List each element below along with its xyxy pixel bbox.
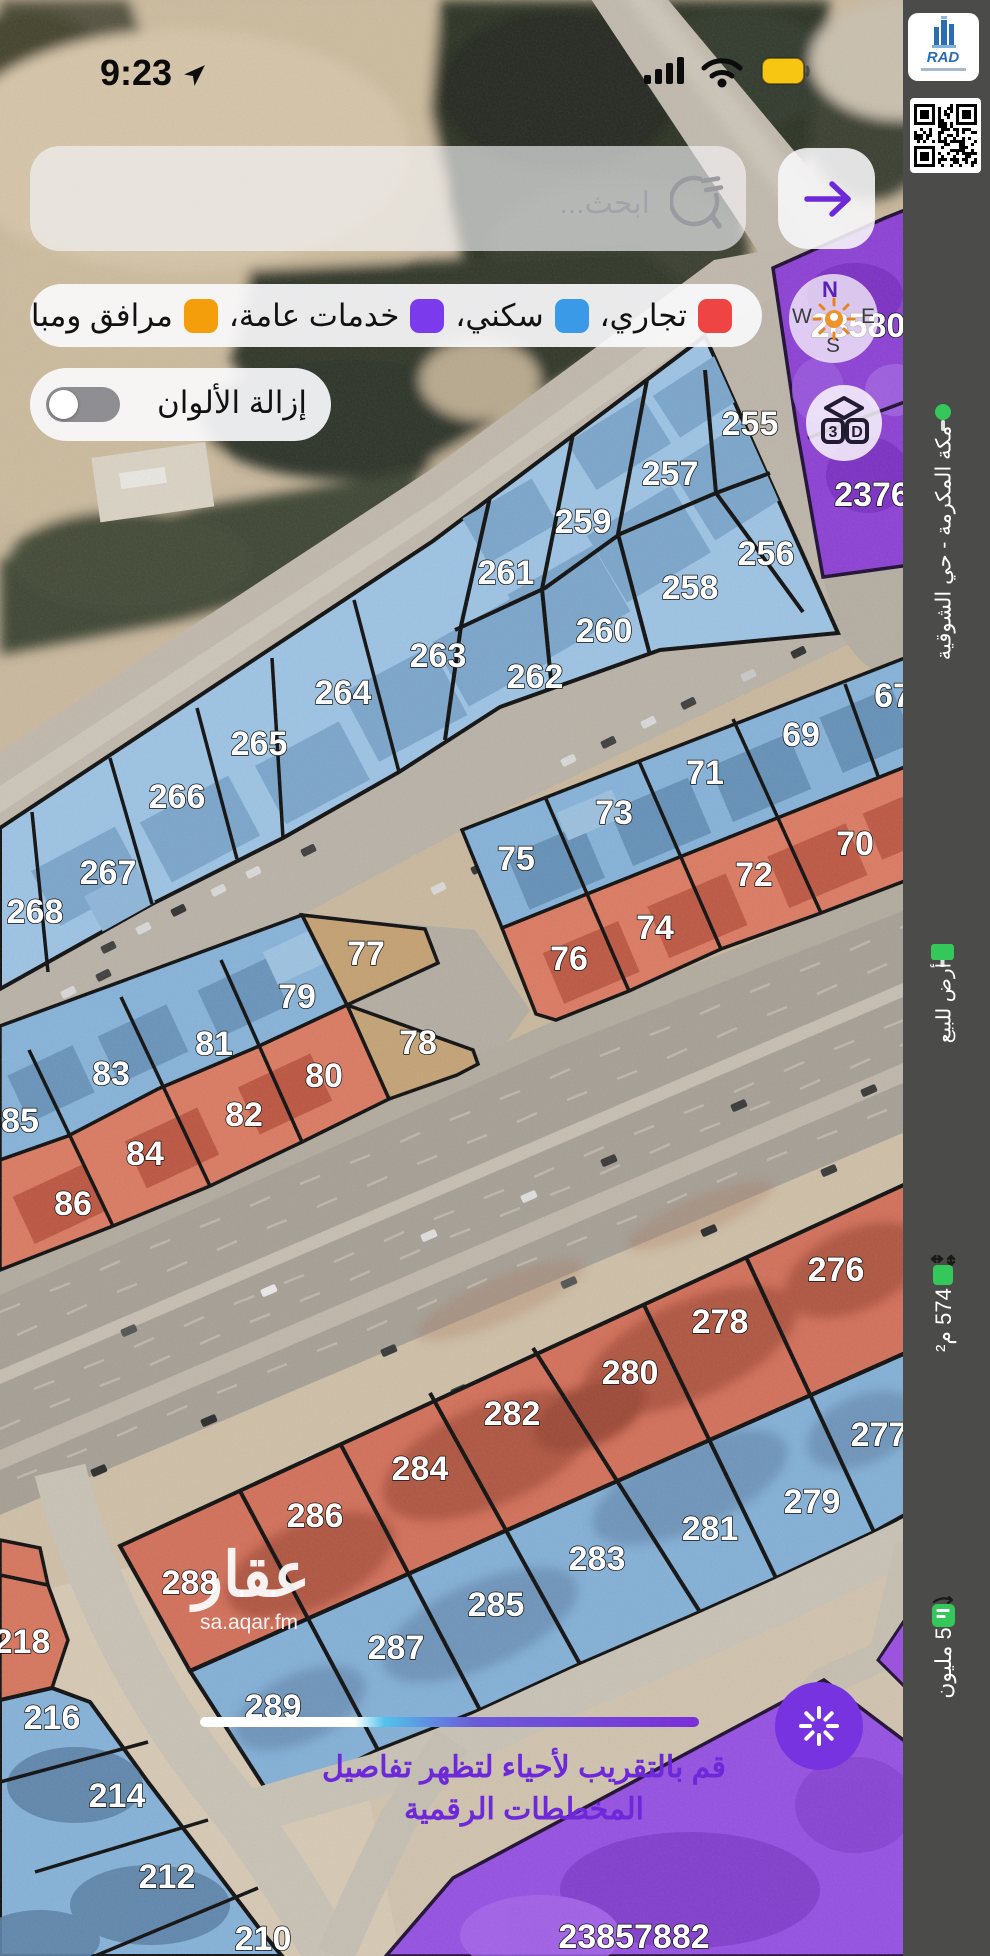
svg-text:278: 278 (692, 1303, 749, 1341)
svg-text:71: 71 (686, 754, 724, 792)
svg-text:283: 283 (569, 1540, 626, 1578)
svg-text:85: 85 (1, 1102, 39, 1140)
svg-text:266: 266 (149, 778, 206, 816)
svg-text:287: 287 (368, 1629, 425, 1667)
svg-text:276: 276 (808, 1251, 865, 1289)
svg-text:285: 285 (468, 1586, 525, 1624)
svg-text:79: 79 (278, 978, 316, 1016)
svg-text:3: 3 (829, 424, 838, 441)
svg-text:286: 286 (287, 1497, 344, 1535)
svg-text:284: 284 (392, 1450, 449, 1488)
svg-text:70: 70 (836, 825, 874, 863)
svg-text:72: 72 (735, 856, 773, 894)
svg-text:212: 212 (139, 1858, 196, 1896)
svg-text:83: 83 (92, 1055, 130, 1093)
svg-text:280: 280 (602, 1354, 659, 1392)
svg-text:257: 257 (642, 455, 699, 493)
svg-text:259: 259 (555, 503, 612, 541)
svg-text:282: 282 (484, 1395, 541, 1433)
svg-text:214: 214 (89, 1777, 146, 1815)
svg-text:82: 82 (225, 1096, 263, 1134)
svg-text:268: 268 (7, 893, 64, 931)
svg-text:210: 210 (235, 1920, 292, 1956)
svg-text:264: 264 (315, 674, 372, 712)
svg-text:2376: 2376 (834, 476, 910, 514)
svg-text:262: 262 (507, 658, 564, 696)
svg-text:RAD: RAD (927, 49, 960, 66)
svg-text:74: 74 (636, 909, 674, 947)
svg-text:258: 258 (662, 569, 719, 607)
svg-text:267: 267 (80, 854, 137, 892)
svg-text:281: 281 (682, 1510, 739, 1548)
svg-text:216: 216 (24, 1699, 81, 1737)
svg-text:23857882: 23857882 (558, 1918, 709, 1956)
svg-text:260: 260 (576, 612, 633, 650)
svg-text:265: 265 (231, 725, 288, 763)
svg-text:86: 86 (54, 1185, 92, 1223)
svg-text:D: D (851, 424, 863, 441)
svg-text:77: 77 (347, 935, 385, 973)
svg-text:76: 76 (550, 940, 588, 978)
svg-text:69: 69 (782, 716, 820, 754)
svg-text:263: 263 (410, 637, 467, 675)
svg-text:255: 255 (722, 405, 779, 443)
svg-text:84: 84 (126, 1135, 164, 1173)
svg-text:81: 81 (195, 1025, 233, 1063)
svg-text:256: 256 (738, 535, 795, 573)
svg-text:73: 73 (595, 794, 633, 832)
svg-text:218: 218 (0, 1623, 50, 1661)
svg-text:279: 279 (784, 1483, 841, 1521)
svg-text:80: 80 (305, 1057, 343, 1095)
svg-text:78: 78 (399, 1024, 437, 1062)
svg-text:75: 75 (497, 840, 535, 878)
svg-text:277: 277 (851, 1416, 908, 1454)
svg-text:261: 261 (478, 554, 535, 592)
